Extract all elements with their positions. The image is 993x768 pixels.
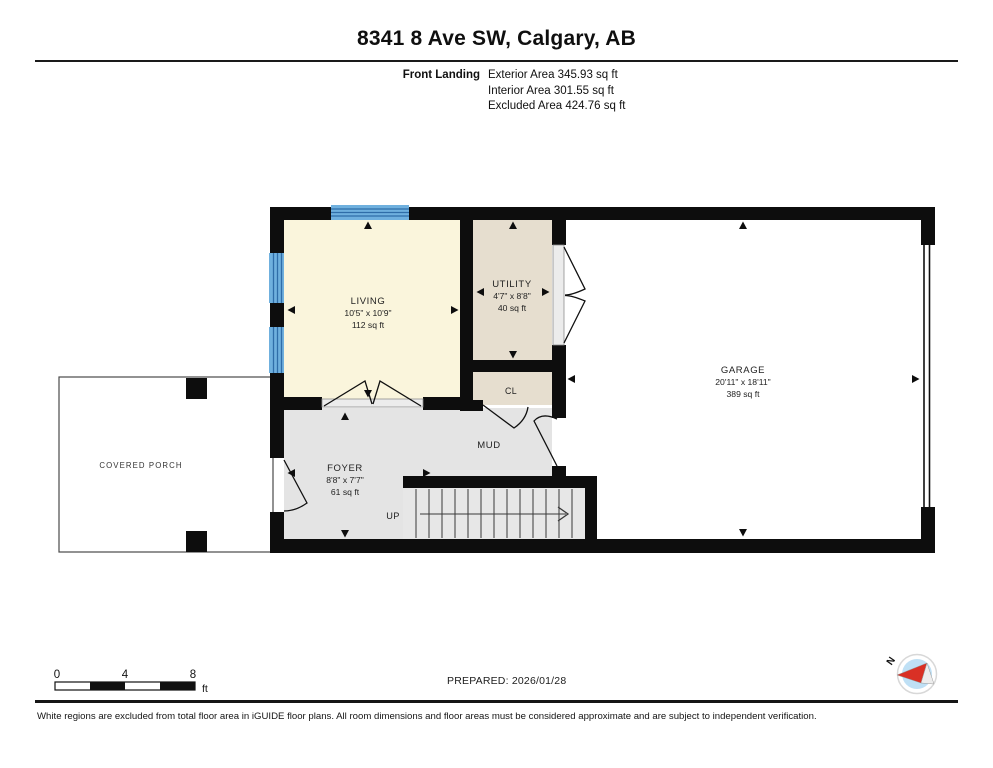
floor-plan-drawing: LIVING 10'5" x 10'9" 112 sq ft UTILITY 4… <box>0 0 993 768</box>
room-fills <box>284 218 585 539</box>
mud-label: MUD <box>477 440 500 451</box>
foyer-sqft: 61 sq ft <box>331 487 360 497</box>
scale-bar: 0 4 8 ft <box>54 669 208 695</box>
window-left-upper <box>269 253 284 303</box>
prepared-date: PREPARED: 2026/01/28 <box>447 675 566 687</box>
disclaimer-text: White regions are excluded from total fl… <box>37 711 957 722</box>
footer-divider <box>35 700 958 703</box>
garage-dims: 20'11" x 18'11" <box>715 377 770 387</box>
foyer-dims: 8'8" x 7'7" <box>326 475 364 485</box>
garage-door <box>924 245 930 507</box>
floor-plan-page: 8341 8 Ave SW, Calgary, AB Front Landing… <box>0 0 993 768</box>
utility-room-sqft: 40 sq ft <box>498 303 527 313</box>
garage-label: GARAGE <box>721 365 765 376</box>
utility-room-label: UTILITY <box>492 279 532 290</box>
window-top <box>331 205 409 220</box>
scale-tick-4: 4 <box>122 669 129 681</box>
utility-french-door <box>564 296 585 344</box>
living-room-label: LIVING <box>351 296 386 307</box>
up-label: UP <box>386 511 400 521</box>
closet-label: CL <box>505 386 517 396</box>
scale-unit: ft <box>202 683 208 695</box>
covered-porch-label: COVERED PORCH <box>99 461 182 470</box>
porch-post <box>186 378 207 399</box>
scale-tick-8: 8 <box>190 669 196 681</box>
compass: N <box>885 655 937 694</box>
window-left-lower <box>269 327 284 373</box>
foyer-label: FOYER <box>327 463 363 474</box>
living-room-dims: 10'5" x 10'9" <box>344 308 391 318</box>
scale-tick-0: 0 <box>54 669 60 681</box>
utility-room-dims: 4'7" x 8'8" <box>493 291 531 301</box>
utility-french-door <box>564 247 585 295</box>
living-room-sqft: 112 sq ft <box>352 320 385 330</box>
garage-sqft: 389 sq ft <box>727 389 761 399</box>
compass-north-label: N <box>885 655 898 667</box>
porch-post <box>186 531 207 552</box>
